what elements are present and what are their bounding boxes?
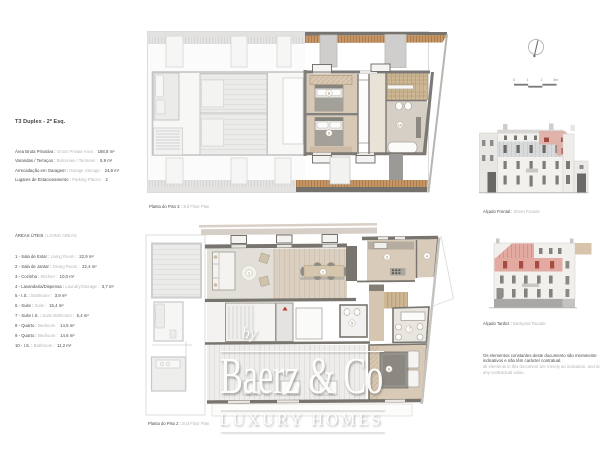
svg-text:0: 0	[513, 78, 515, 82]
svg-text:10: 10	[398, 122, 403, 127]
svg-text:3m: 3m	[553, 78, 558, 82]
svg-text:2: 2	[541, 78, 543, 82]
svg-text:1: 1	[527, 78, 529, 82]
